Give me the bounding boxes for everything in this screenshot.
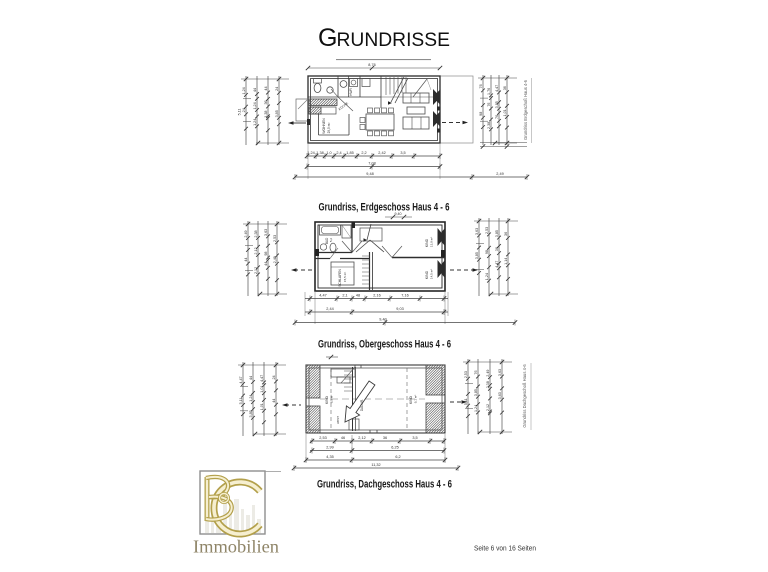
- svg-text:44: 44: [264, 86, 268, 90]
- svg-text:4,47: 4,47: [260, 375, 264, 382]
- svg-text:24: 24: [242, 108, 246, 112]
- svg-text:13,9 m²: 13,9 m²: [430, 237, 434, 247]
- svg-text:8,5 m²: 8,5 m²: [330, 395, 334, 404]
- svg-text:76: 76: [487, 102, 491, 106]
- svg-text:98: 98: [485, 250, 489, 254]
- svg-text:2,12: 2,12: [254, 247, 258, 254]
- svg-text:4,47: 4,47: [495, 85, 499, 92]
- svg-text:4,47: 4,47: [319, 294, 326, 298]
- svg-text:1,01: 1,01: [503, 109, 507, 116]
- svg-text:2,38: 2,38: [486, 381, 490, 388]
- svg-text:Grundriss Dachgeschoß Haus 4-6: Grundriss Dachgeschoß Haus 4-6: [522, 364, 527, 428]
- svg-text:14,5 m²: 14,5 m²: [430, 269, 434, 279]
- svg-text:36: 36: [264, 100, 268, 104]
- svg-text:24: 24: [275, 87, 279, 91]
- svg-text:76: 76: [474, 370, 478, 374]
- svg-text:1,85: 1,85: [346, 151, 353, 155]
- svg-text:3,85: 3,85: [275, 110, 279, 117]
- svg-text:4,35: 4,35: [326, 455, 333, 459]
- svg-text:Grundriss, Erdgeschoss Haus 4: Grundriss, Erdgeschoss Haus 4 - 6: [319, 202, 450, 214]
- svg-text:5,11: 5,11: [238, 109, 242, 116]
- svg-text:6,2: 6,2: [395, 455, 400, 459]
- svg-text:1,24: 1,24: [253, 119, 257, 126]
- svg-text:2,49: 2,49: [496, 172, 503, 176]
- svg-text:36: 36: [495, 247, 499, 251]
- svg-text:1,76: 1,76: [487, 88, 491, 95]
- svg-text:Grundriss, Dachgeschoss Haus 4: Grundriss, Dachgeschoss Haus 4 - 6: [317, 479, 452, 491]
- svg-text:7,16: 7,16: [401, 294, 408, 298]
- svg-text:44: 44: [272, 399, 276, 403]
- svg-text:1,24: 1,24: [249, 395, 253, 402]
- svg-text:3,63: 3,63: [475, 228, 479, 235]
- svg-text:3,63: 3,63: [264, 229, 268, 236]
- svg-text:3,5: 3,5: [412, 436, 417, 440]
- svg-text:2,12: 2,12: [486, 404, 490, 411]
- svg-text:1,24: 1,24: [307, 151, 314, 155]
- svg-text:5,11: 5,11: [464, 398, 468, 405]
- svg-text:SCHLAFEN: SCHLAFEN: [338, 269, 342, 287]
- svg-text:3,63: 3,63: [498, 392, 502, 399]
- svg-text:3,63: 3,63: [498, 369, 502, 376]
- svg-text:2,53: 2,53: [485, 227, 489, 234]
- svg-text:KIND: KIND: [425, 270, 429, 279]
- svg-text:3,85: 3,85: [474, 389, 478, 396]
- svg-text:4,47: 4,47: [495, 261, 499, 268]
- svg-text:2,49: 2,49: [486, 370, 490, 377]
- svg-text:1,24: 1,24: [242, 87, 246, 94]
- svg-text:9,40: 9,40: [379, 318, 386, 322]
- svg-text:36: 36: [383, 436, 387, 440]
- svg-text:Grundriss Erdgeschoß Haus 4-6: Grundriss Erdgeschoß Haus 4-6: [523, 79, 528, 140]
- svg-text:3,85: 3,85: [475, 252, 479, 259]
- svg-text:2,53: 2,53: [273, 235, 277, 242]
- svg-text:2,38: 2,38: [254, 230, 258, 237]
- svg-text:3,85: 3,85: [495, 101, 499, 108]
- svg-text:46: 46: [341, 436, 345, 440]
- svg-text:36: 36: [504, 232, 508, 236]
- svg-text:29,5 m²: 29,5 m²: [327, 123, 331, 134]
- svg-text:44: 44: [264, 262, 268, 266]
- svg-text:2,4: 2,4: [336, 151, 341, 155]
- svg-text:2,1: 2,1: [342, 294, 347, 298]
- svg-text:36: 36: [503, 86, 507, 90]
- svg-text:44: 44: [253, 88, 257, 92]
- svg-text:11,32: 11,32: [371, 463, 380, 467]
- svg-text:48: 48: [356, 294, 360, 298]
- svg-text:3,5: 3,5: [400, 151, 405, 155]
- svg-text:2,49: 2,49: [273, 256, 277, 263]
- svg-text:98: 98: [479, 112, 483, 116]
- svg-text:KIND: KIND: [409, 395, 413, 403]
- svg-text:2,38: 2,38: [487, 122, 491, 129]
- svg-text:1,0: 1,0: [326, 151, 331, 155]
- svg-text:1,01: 1,01: [260, 403, 264, 410]
- svg-text:2,99: 2,99: [326, 446, 333, 450]
- svg-text:1,01: 1,01: [260, 386, 264, 393]
- svg-text:9,48: 9,48: [366, 172, 373, 176]
- svg-text:44: 44: [249, 376, 253, 380]
- svg-text:2,53: 2,53: [319, 436, 326, 440]
- svg-text:2,49: 2,49: [244, 230, 248, 237]
- svg-text:1,24: 1,24: [474, 405, 478, 412]
- svg-text:DACHR.: DACHR.: [360, 399, 364, 411]
- svg-text:HWR: HWR: [349, 88, 353, 96]
- svg-text:Seite 6 von 16 Seiten: Seite 6 von 16 Seiten: [474, 544, 536, 553]
- svg-text:2,2: 2,2: [361, 151, 366, 155]
- svg-text:8,76: 8,76: [368, 63, 375, 67]
- svg-text:98: 98: [264, 252, 268, 256]
- svg-text:3,85: 3,85: [249, 410, 253, 417]
- svg-text:Grundriss, Obergeschoss Haus 4: Grundriss, Obergeschoss Haus 4 - 6: [318, 339, 451, 351]
- svg-text:5,11: 5,11: [239, 398, 243, 405]
- svg-text:KIND: KIND: [325, 395, 329, 403]
- svg-text:44: 44: [244, 258, 248, 262]
- svg-text:2,16: 2,16: [373, 294, 380, 298]
- svg-text:G: G: [318, 24, 337, 52]
- svg-text:6,25: 6,25: [391, 446, 398, 450]
- svg-text:2,44: 2,44: [326, 307, 333, 311]
- svg-text:2,12: 2,12: [254, 267, 258, 274]
- svg-text:5,2: 5,2: [329, 238, 333, 243]
- svg-text:9,40: 9,40: [395, 212, 402, 216]
- svg-text:ABST: ABST: [336, 416, 340, 424]
- svg-text:2,42: 2,42: [378, 151, 385, 155]
- svg-text:24: 24: [272, 375, 276, 379]
- svg-text:1,24: 1,24: [253, 102, 257, 109]
- svg-text:KIND: KIND: [425, 238, 429, 247]
- svg-text:76: 76: [479, 84, 483, 88]
- svg-text:9,1 m²: 9,1 m²: [414, 395, 418, 404]
- svg-text:WOHNEN: WOHNEN: [322, 118, 326, 134]
- svg-text:1,38: 1,38: [316, 151, 323, 155]
- svg-text:2,53: 2,53: [464, 371, 468, 378]
- svg-text:9,03: 9,03: [396, 307, 403, 311]
- svg-text:3,85: 3,85: [495, 230, 499, 237]
- svg-text:2,12: 2,12: [358, 436, 365, 440]
- svg-text:1,38: 1,38: [264, 111, 268, 118]
- svg-text:Immobilien: Immobilien: [193, 537, 279, 557]
- svg-text:RUNDRISSE: RUNDRISSE: [337, 29, 451, 51]
- svg-text:7,08: 7,08: [368, 162, 375, 166]
- svg-text:1,14: 1,14: [504, 258, 508, 265]
- svg-text:4,47: 4,47: [239, 376, 243, 383]
- svg-text:15,5 m²: 15,5 m²: [343, 272, 347, 282]
- svg-text:76: 76: [495, 115, 499, 119]
- svg-text:1,24: 1,24: [485, 273, 489, 280]
